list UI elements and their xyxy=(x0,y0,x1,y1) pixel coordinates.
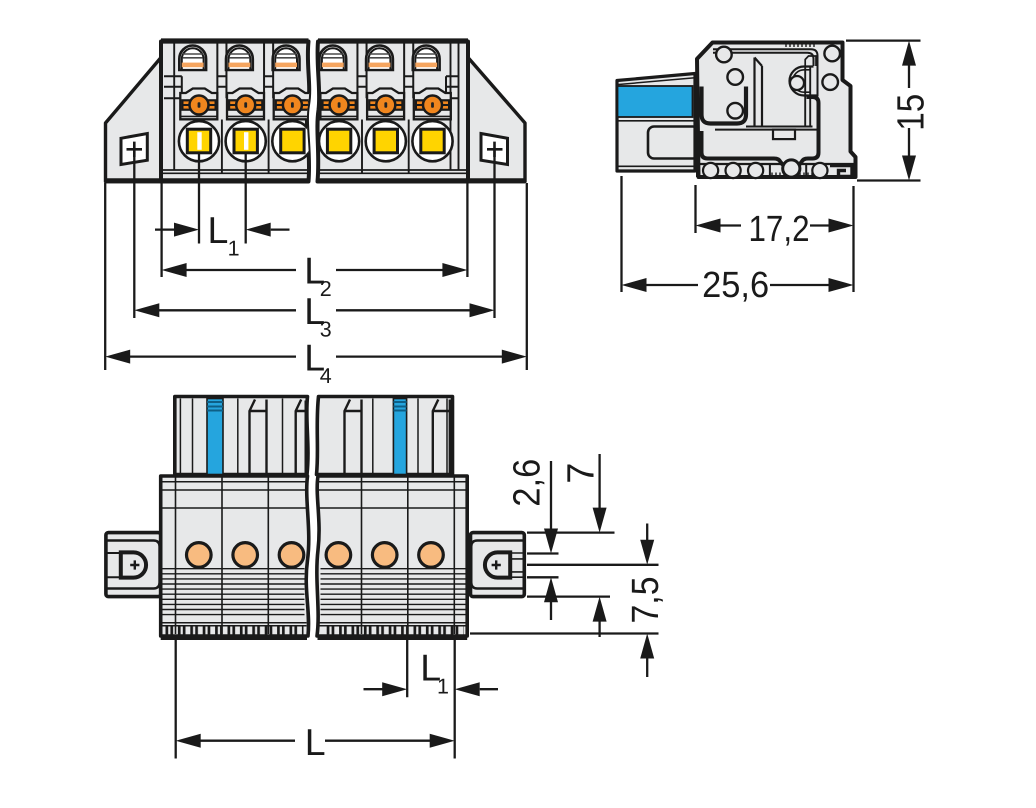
svg-text:15: 15 xyxy=(890,94,932,131)
svg-text:4: 4 xyxy=(320,364,332,388)
svg-text:7: 7 xyxy=(561,463,603,484)
svg-text:25,6: 25,6 xyxy=(702,264,769,305)
svg-text:7,5: 7,5 xyxy=(625,577,667,624)
svg-text:L: L xyxy=(305,721,326,763)
svg-text:1: 1 xyxy=(437,675,449,699)
svg-text:L: L xyxy=(208,209,229,251)
svg-text:1: 1 xyxy=(228,237,240,261)
svg-text:17,2: 17,2 xyxy=(749,208,810,249)
svg-text:2,6: 2,6 xyxy=(507,459,549,507)
